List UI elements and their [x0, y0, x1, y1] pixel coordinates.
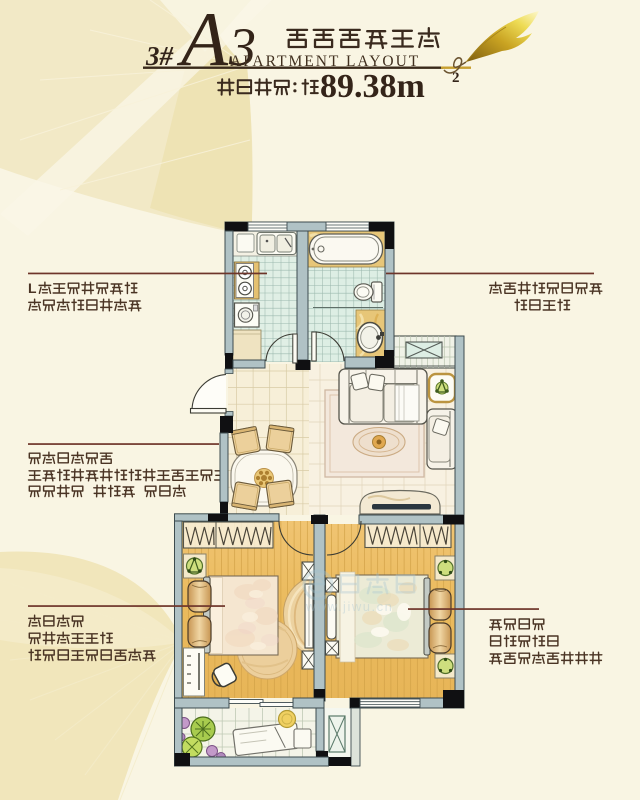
svg-text:L: L	[28, 280, 37, 296]
svg-text:www.jiwu.cn: www.jiwu.cn	[305, 599, 393, 614]
svg-text:A: A	[176, 0, 229, 82]
svg-text:89.38m: 89.38m	[320, 68, 425, 105]
